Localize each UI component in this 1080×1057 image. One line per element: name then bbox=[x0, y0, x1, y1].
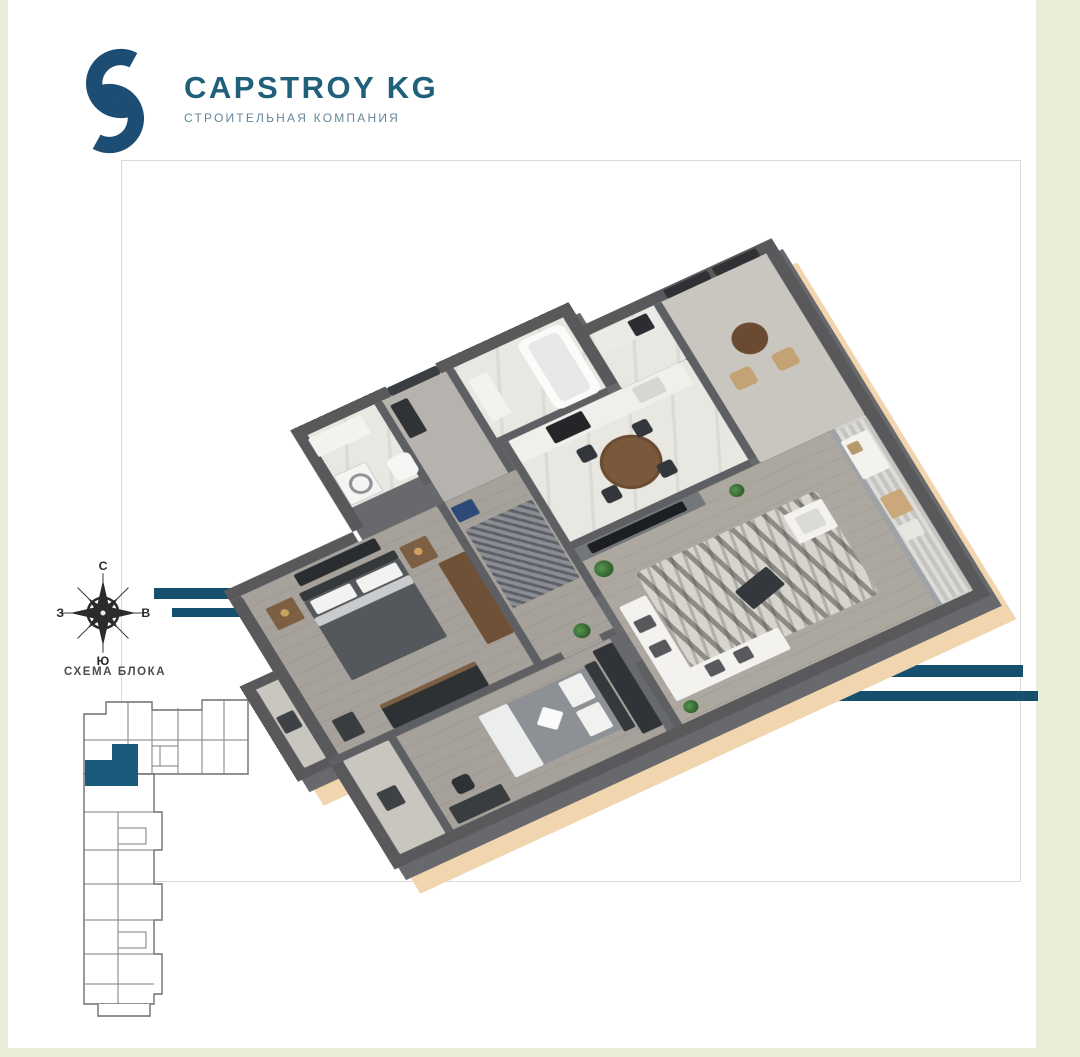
compass-east-label: В bbox=[141, 606, 150, 620]
company-tagline: СТРОИТЕЛЬНАЯ КОМПАНИЯ bbox=[184, 111, 438, 125]
capstroy-logo-icon bbox=[62, 48, 168, 154]
compass-north-label: С bbox=[99, 560, 108, 573]
logo-text-block: CAPSTROY KG СТРОИТЕЛЬНАЯ КОМПАНИЯ bbox=[184, 70, 438, 125]
compass-rose-icon: С Ю З В bbox=[54, 560, 152, 666]
compass-south-label: Ю bbox=[97, 654, 110, 666]
block-scheme-map bbox=[54, 688, 269, 1020]
compass-west-label: З bbox=[56, 606, 64, 620]
company-name: CAPSTROY KG bbox=[184, 70, 438, 106]
flyer-sheet: CAPSTROY KG СТРОИТЕЛЬНАЯ КОМПАНИЯ С Ю З … bbox=[8, 0, 1036, 1048]
block-scheme-label: СХЕМА БЛОКА bbox=[64, 666, 166, 678]
